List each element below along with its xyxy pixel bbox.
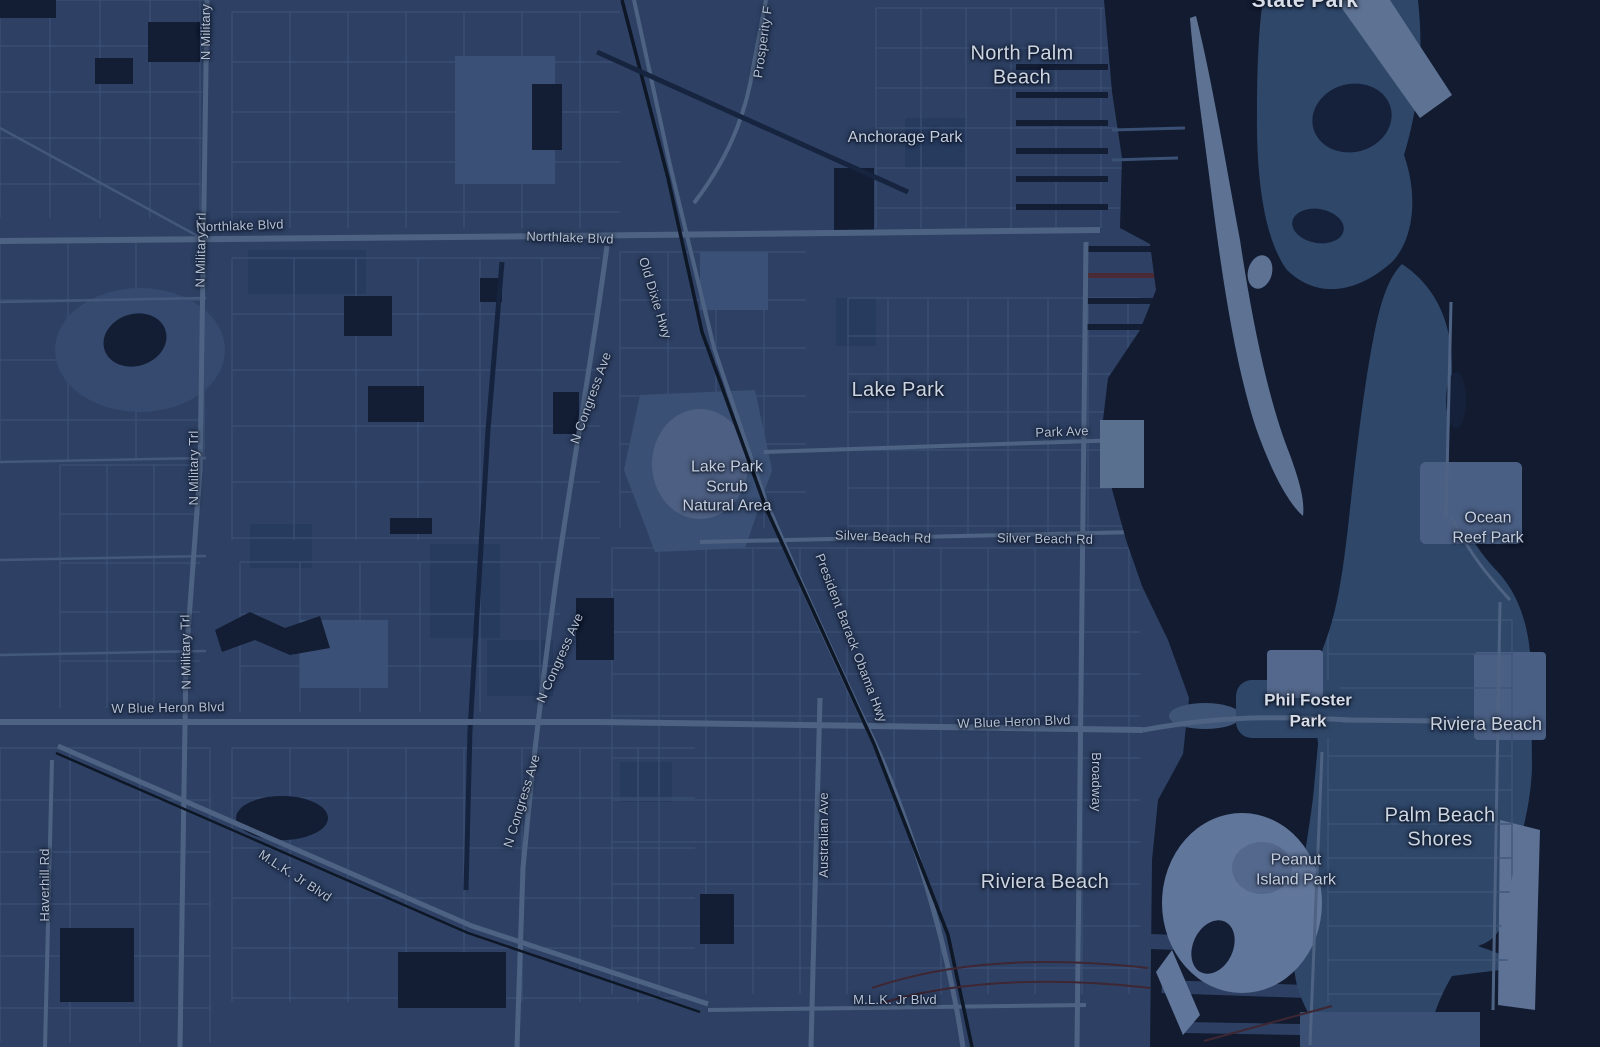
map-artwork — [0, 0, 1600, 1047]
road-label-w-blue-heron-blvd-1: W Blue Heron Blvd — [111, 699, 224, 717]
road-label-silver-beach-rd-2: Silver Beach Rd — [997, 530, 1093, 548]
road-label-northlake-blvd-2: Northlake Blvd — [526, 229, 614, 248]
park-label-ocean-reef-park[interactable]: Ocean Reef Park — [1452, 508, 1523, 547]
park-label-anchorage-park[interactable]: Anchorage Park — [848, 128, 963, 148]
map-canvas[interactable]: State Park Anchorage Park Lake Park Scru… — [0, 0, 1600, 1047]
road-label-northlake-blvd-1: Northlake Blvd — [196, 217, 284, 236]
park-label-state-park[interactable]: State Park — [1252, 0, 1359, 14]
road-label-n-military-trl-2: N Military Trl — [186, 430, 202, 505]
park-label-peanut-island-park[interactable]: Peanut Island Park — [1256, 850, 1336, 889]
city-label-palm-beach-shores[interactable]: Palm Beach Shores — [1385, 804, 1496, 853]
rail-dock-spur — [1085, 273, 1157, 278]
park-label-lake-park-scrub[interactable]: Lake Park Scrub Natural Area — [683, 458, 772, 517]
road-label-n-military-0: N Military — [198, 4, 214, 60]
city-label-north-palm-beach[interactable]: North Palm Beach — [970, 42, 1073, 91]
neighborhood-label-riviera-beach[interactable]: Riviera Beach — [1430, 714, 1542, 736]
shore-marina — [1100, 420, 1144, 488]
park-label-phil-foster-park[interactable]: Phil Foster Park — [1264, 690, 1352, 731]
road-label-n-military-trl-3: N Military Trl — [177, 614, 194, 689]
road-label-park-ave: Park Ave — [1035, 423, 1089, 441]
road-label-mlk-jr-blvd-2: M.L.K. Jr Blvd — [853, 992, 937, 1008]
road-label-haverhill-rd: Haverhill Rd — [37, 848, 53, 921]
road-label-broadway: Broadway — [1088, 752, 1104, 811]
city-label-lake-park[interactable]: Lake Park — [852, 378, 945, 402]
city-label-riviera-beach[interactable]: Riviera Beach — [981, 870, 1109, 894]
road-label-australian-ave: Australian Ave — [816, 792, 832, 878]
peanut-island — [1162, 813, 1322, 993]
road-label-silver-beach-rd-1: Silver Beach Rd — [835, 527, 932, 546]
